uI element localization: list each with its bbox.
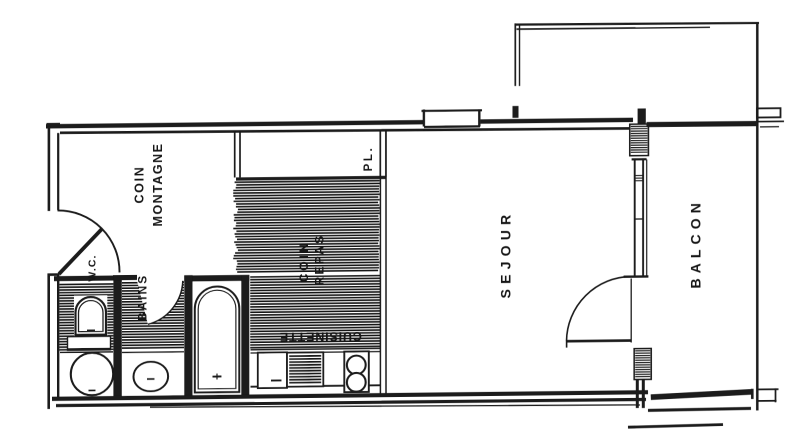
svg-text:COIN: COIN bbox=[297, 241, 311, 283]
svg-text:COIN: COIN bbox=[132, 165, 146, 203]
svg-text:BAINS: BAINS bbox=[136, 274, 150, 321]
svg-text:REPAS: REPAS bbox=[313, 233, 327, 285]
svg-text:SEJOUR: SEJOUR bbox=[498, 210, 514, 299]
svg-text:MONTAGNE: MONTAGNE bbox=[151, 142, 165, 226]
svg-text:W.C.: W.C. bbox=[86, 254, 98, 281]
svg-text:PL.: PL. bbox=[363, 146, 375, 172]
svg-text:BALCON: BALCON bbox=[688, 198, 704, 289]
svg-text:CUISINETTE: CUISINETTE bbox=[279, 329, 362, 344]
